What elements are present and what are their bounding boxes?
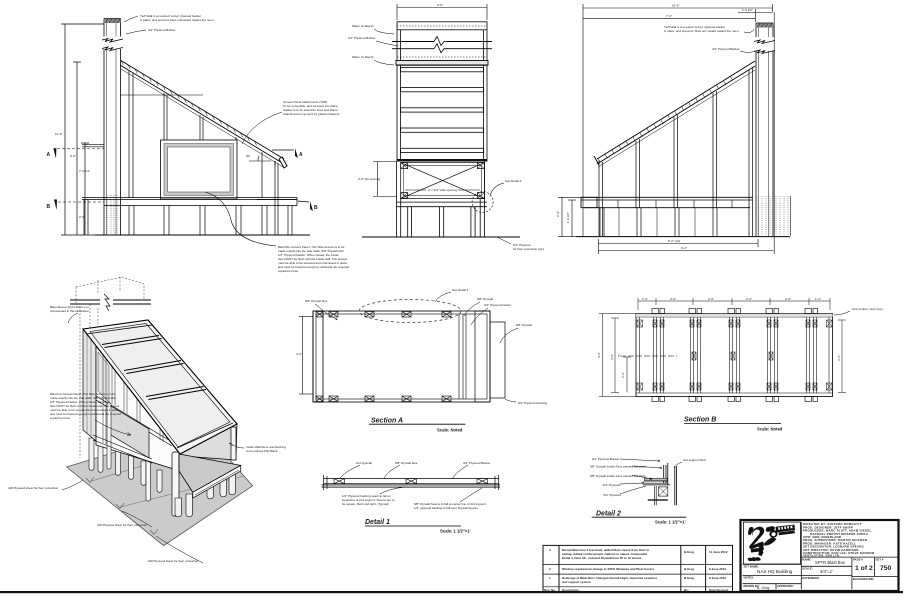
svg-text:4'-6": 4'-6" <box>597 352 601 358</box>
svg-text:1 of 2: 1 of 2 <box>855 565 873 572</box>
svg-text:1/2" plywood backing to fall o: 1/2" plywood backing to fall over Drywal… <box>414 506 479 510</box>
svg-text:Section A: Section A <box>371 418 403 425</box>
svg-text:in place, and prevents 'blow o: in place, and prevents 'blow out' inward… <box>664 29 740 33</box>
svg-text:2'-0": 2'-0" <box>708 297 714 301</box>
svg-text:2x4 Lumber, clear (typ): 2x4 Lumber, clear (typ) <box>852 307 883 311</box>
svg-text:Rev. No.: Rev. No. <box>544 588 556 592</box>
svg-text:5/8" Drywall: 5/8" Drywall <box>477 297 493 301</box>
svg-text:NOTES:: NOTES: <box>744 576 755 580</box>
svg-text:See Detail 2: See Detail 2 <box>505 179 522 183</box>
svg-text:Detail 1: Detail 1 <box>365 519 390 526</box>
svg-text:represented in this illustrati: represented in this illustration <box>50 309 89 313</box>
svg-text:3/4"=1': 3/4"=1' <box>820 569 833 574</box>
svg-text:By:: By: <box>684 588 689 592</box>
svg-text:9'-2": 9'-2" <box>681 246 687 250</box>
svg-text:B: B <box>314 205 318 211</box>
svg-text:Water (A-Req'd): Water (A-Req'd) <box>352 55 373 59</box>
svg-text:B.Greg: B.Greg <box>684 576 694 580</box>
svg-text:to be painted Flat Black: to be painted Flat Black <box>246 449 278 453</box>
svg-text:3/4" Plywood: 3/4" Plywood <box>603 483 621 487</box>
svg-text:A: A <box>299 152 303 158</box>
svg-text:B.Greg: B.Greg <box>684 550 694 554</box>
svg-text:B. Greg: B. Greg <box>757 586 769 590</box>
svg-text:4x8 Plywood sheet for floor pr: 4x8 Plywood sheet for floor protection <box>8 486 59 490</box>
svg-text:See Detail 1: See Detail 1 <box>452 288 469 292</box>
svg-text:6'-0": 6'-0" <box>70 154 76 158</box>
svg-text:2'-0": 2'-0" <box>746 297 752 301</box>
svg-text:Scale: Noted: Scale: Noted <box>757 427 783 432</box>
svg-text:explosive force.: explosive force. <box>50 416 71 420</box>
svg-text:2'-0" full opening: 2'-0" full opening <box>358 177 380 181</box>
svg-text:1'-9 1/2": 1'-9 1/2" <box>742 8 753 12</box>
svg-text:in place, and prevents blow ou: in place, and prevents blow out/inward t… <box>140 18 215 22</box>
svg-text:PAGE #: PAGE # <box>853 557 863 561</box>
svg-text:6'-2" (ref): 6'-2" (ref) <box>668 239 680 243</box>
svg-text:Date Revised:: Date Revised: <box>709 588 729 592</box>
svg-text:3/4" Plywood Backer: 3/4" Plywood Backer <box>712 47 740 51</box>
svg-text:7'-0": 7'-0" <box>666 14 672 18</box>
svg-text:14'-6": 14'-6" <box>55 132 63 136</box>
svg-text:APPROVED:: APPROVED: <box>777 584 794 588</box>
svg-text:5/4" Plywood Decking: 5/4" Plywood Decking <box>518 401 547 405</box>
svg-text:Window requirement change to S: Window requirement change to SPFX Window… <box>562 567 655 571</box>
svg-text:3/4" Plywood Backer: 3/4" Plywood Backer <box>592 457 620 461</box>
svg-text:EXTENSION:: EXTENSION: <box>802 576 819 580</box>
svg-text:NAS HQ Building: NAS HQ Building <box>757 569 793 574</box>
svg-text:2'-6": 2'-6" <box>556 211 560 217</box>
svg-text:SCALE:: SCALE: <box>802 567 812 571</box>
svg-text:A: A <box>47 152 51 158</box>
svg-text:3/4" Plywood backer: 3/4" Plywood backer <box>484 303 511 307</box>
svg-text:8 June 2012: 8 June 2012 <box>709 567 726 571</box>
svg-text:Scale: Noted: Scale: Noted <box>437 428 463 433</box>
svg-text:be square, flush and tight. (T: be square, flush and tight. (Typical) <box>342 502 389 506</box>
svg-text:for floor protection (typ): for floor protection (typ) <box>513 247 544 251</box>
svg-text:4'-0": 4'-0" <box>610 354 614 360</box>
svg-text:Attachments is generic by plas: Attachments is generic by plastron/Gasvm… <box>283 112 340 116</box>
svg-text:Section B: Section B <box>684 417 716 424</box>
svg-text:2x4 support Stud: 2x4 support Stud <box>683 458 706 462</box>
svg-text:1'-0": 1'-0" <box>642 297 648 301</box>
svg-text:4' 7 3/4" wide opening: 4' 7 3/4" wide opening <box>428 188 458 192</box>
svg-text:10'-6": 10'-6" <box>672 4 680 8</box>
svg-text:1'-2": 1'-2" <box>815 297 821 301</box>
svg-text:4'-2": 4'-2" <box>296 352 302 356</box>
svg-text:5/8" Drywall Inside Face paint: 5/8" Drywall Inside Face painted flat bl… <box>590 474 646 478</box>
svg-text:4x8 Plywood sheet for floor pr: 4x8 Plywood sheet for floor protection <box>97 523 148 527</box>
svg-text:7'-6 1/4": 7'-6 1/4" <box>79 169 90 173</box>
svg-text:Detail 4, Note A6 - reduced Dr: Detail 4, Note A6 - reduced Drywall from… <box>562 556 642 560</box>
svg-text:750: 750 <box>880 565 892 572</box>
svg-text:SET NAME:: SET NAME: <box>744 565 759 569</box>
svg-text:3'-6": 3'-6" <box>837 355 841 361</box>
svg-text:Water (A-Req'd): Water (A-Req'd) <box>352 24 373 28</box>
svg-text:and support system.: and support system. <box>562 580 592 584</box>
svg-text:2x4 (typical): 2x4 (typical) <box>356 461 372 465</box>
svg-text:Detail 2: Detail 2 <box>596 511 621 518</box>
svg-text:3/4" Plywood Backer: 3/4" Plywood Backer <box>463 461 491 465</box>
svg-text:2'-0": 2'-0" <box>670 297 676 301</box>
svg-text:5/8" Drywall face: 5/8" Drywall face <box>305 299 328 303</box>
svg-text:2'-0": 2'-0" <box>621 372 625 378</box>
svg-text:SET #: SET # <box>876 557 884 561</box>
svg-text:5/4" Plywood: 5/4" Plywood <box>603 493 621 497</box>
svg-text:NAME:: NAME: <box>802 557 811 561</box>
svg-text:5/8" Drywall face: 5/8" Drywall face <box>395 461 418 465</box>
svg-text:B: B <box>47 204 51 210</box>
svg-text:3/4" Plywood Backer: 3/4" Plywood Backer <box>348 36 376 40</box>
svg-text:BACKGROUND:: BACKGROUND: <box>853 577 875 581</box>
svg-text:Description:: Description: <box>562 588 580 592</box>
svg-text:8 June 2012: 8 June 2012 <box>709 576 726 580</box>
svg-text:30°: 30° <box>246 154 251 158</box>
svg-text:1'-9 3/4": 1'-9 3/4" <box>566 212 570 223</box>
svg-text:4'-6": 4'-6" <box>437 3 443 7</box>
svg-text:Scale: 1 1/2"=1': Scale: 1 1/2"=1' <box>655 520 686 525</box>
svg-text:Scale: 1 1/2"=1': Scale: 1 1/2"=1' <box>440 529 471 534</box>
svg-text:2'-0": 2'-0" <box>785 297 791 301</box>
svg-text:explosive force.: explosive force. <box>278 269 299 273</box>
svg-text:2x8 Plywood sheet for floor pr: 2x8 Plywood sheet for floor protection <box>148 559 199 563</box>
svg-text:5/8" Drywall: 5/8" Drywall <box>516 323 532 327</box>
svg-text:3/4" Plywood Backer: 3/4" Plywood Backer <box>148 28 176 32</box>
svg-text:11 June 2012: 11 June 2012 <box>709 550 728 554</box>
svg-text:SPTR Blast Box: SPTR Blast Box <box>815 560 846 565</box>
svg-text:B.Greg: B.Greg <box>684 567 694 571</box>
